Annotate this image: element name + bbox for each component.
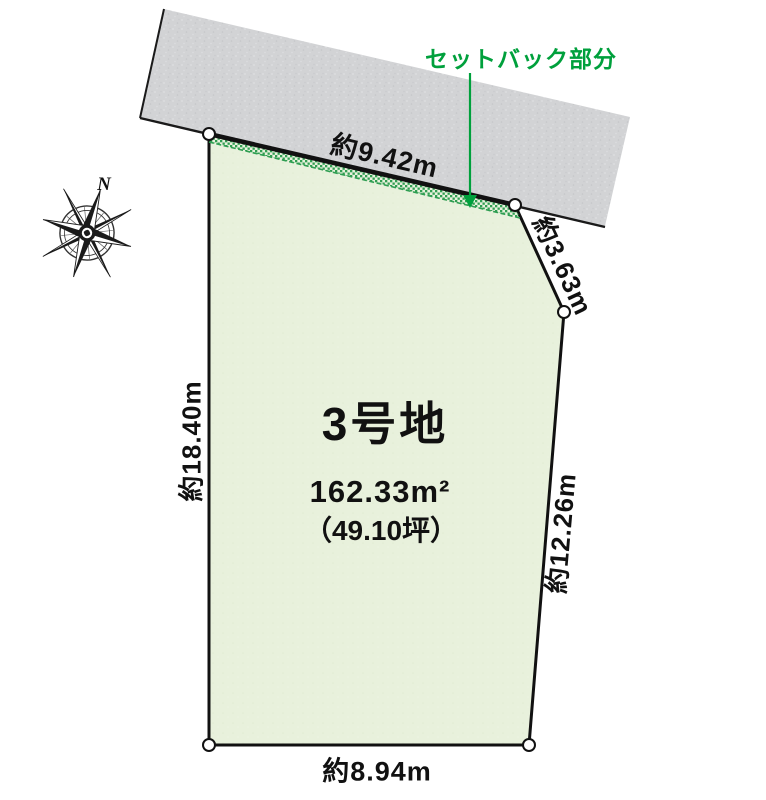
dimension-left-label: 約18.40m [172,380,209,501]
vertex-marker [203,128,215,140]
vertex-marker [509,199,521,211]
vertex-marker [523,739,535,751]
dimension-bottom-label: 約8.94m [322,750,432,789]
plot-area-tsubo: （49.10坪） [304,509,458,549]
compass-rose-icon [0,145,175,322]
setback-label: セットバック部分 [425,40,617,74]
vertex-marker [203,739,215,751]
compass-north-label: N [97,174,111,196]
plot-title: 3号地 [322,388,449,454]
plot-area-sqm: 162.33m² [310,474,451,510]
land-plot-diagram: N セットバック部分 約9.42m 約3.63m 約12.26m 約18.40m… [0,0,766,800]
